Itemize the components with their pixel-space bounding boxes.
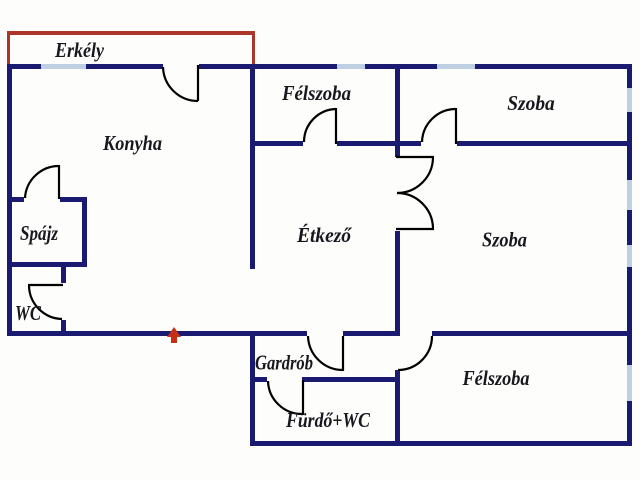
svg-text:Konyha: Konyha xyxy=(102,131,162,155)
svg-text:Spájz: Spájz xyxy=(20,221,59,245)
svg-text:Gardrób: Gardrób xyxy=(255,351,313,375)
svg-text:Étkező: Étkező xyxy=(296,223,352,247)
svg-text:Szoba: Szoba xyxy=(482,228,527,252)
svg-text:Erkély: Erkély xyxy=(54,38,104,62)
svg-text:Félszoba: Félszoba xyxy=(462,366,530,390)
svg-text:Fürdő+WC: Fürdő+WC xyxy=(285,408,371,432)
svg-text:WC: WC xyxy=(15,301,42,325)
svg-text:Félszoba: Félszoba xyxy=(281,81,351,105)
svg-text:Szoba: Szoba xyxy=(507,91,555,115)
